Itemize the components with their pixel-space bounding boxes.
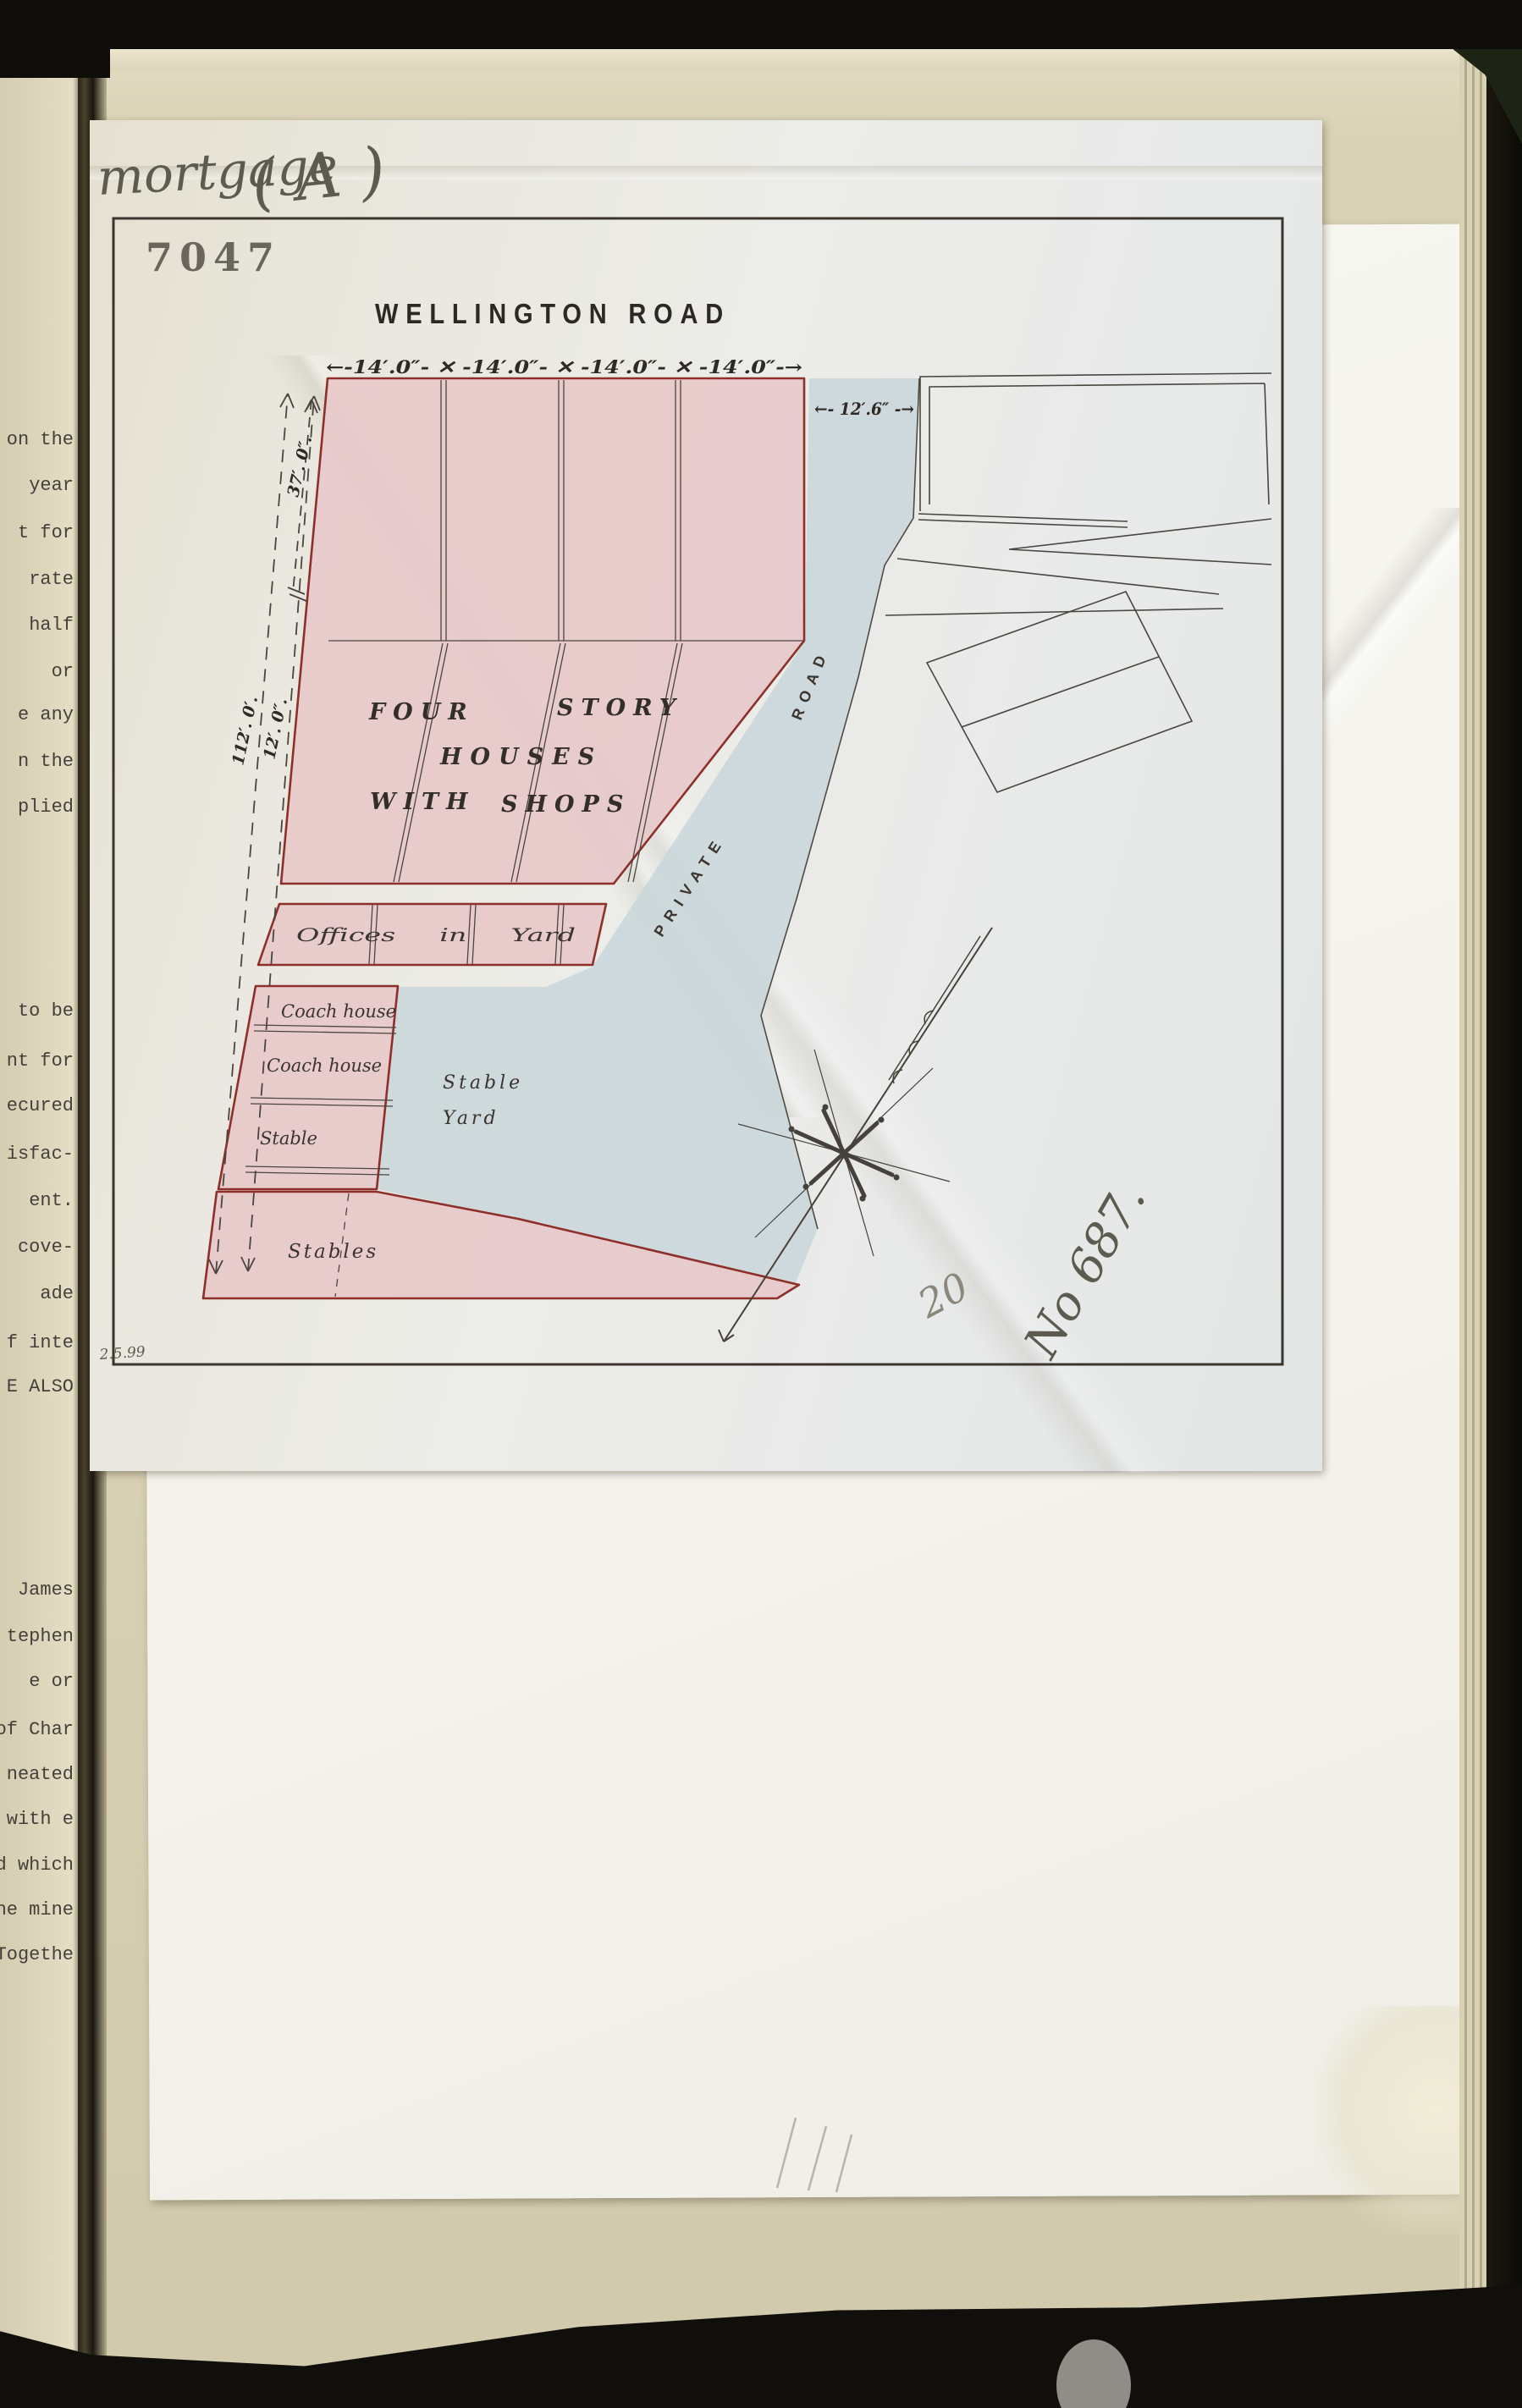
- label-stable: Stable: [260, 1128, 317, 1149]
- label-offices-in-yard: Offices in Yard: [296, 925, 576, 945]
- label-coach-house-2: Coach house: [267, 1055, 382, 1076]
- label-houses: HOUSES: [439, 744, 603, 770]
- building-outline-wedge: [1009, 519, 1271, 565]
- ink-number: No 687.: [1013, 1174, 1157, 1368]
- building-outline-slanted: [927, 592, 1192, 792]
- book-photo: on the year t for rate half or e any n t…: [0, 0, 1522, 2408]
- handwritten-class-mark: ( A ): [248, 134, 389, 220]
- label-with: WITH: [370, 789, 476, 815]
- label-four: FOUR: [368, 699, 475, 725]
- frontage-dimension-row: ←-14′.0″- ✕ -14′.0″- ✕ -14′.0″- ✕ -14′.0…: [326, 356, 802, 377]
- plan-drawing: 7047 WELLINGTON ROAD ←-14′.0″- ✕ -14′.0″…: [0, 0, 1522, 2408]
- label-stables: Stables: [288, 1241, 378, 1263]
- pencil-strokes: [777, 2118, 852, 2192]
- label-shops: SHOPS: [501, 791, 631, 818]
- outlined-buildings: [885, 373, 1271, 792]
- street-title: WELLINGTON ROAD: [375, 298, 731, 329]
- side-dimension-outer: 112′. 0′.: [229, 695, 262, 768]
- side-dimension-middle: 12′. 0″.: [260, 697, 291, 761]
- label-stable-yard-2: Yard: [443, 1108, 499, 1129]
- label-stable-yard-1: Stable: [443, 1072, 523, 1094]
- label-coach-house-1: Coach house: [281, 1001, 396, 1022]
- road-gap-dimension: ←- 12′.6″ -→: [814, 399, 914, 419]
- survey-date-note: 2.5.99: [98, 1343, 146, 1364]
- grey-blob: [1056, 2339, 1131, 2408]
- plot-boundary-lines: [885, 559, 1223, 615]
- building-outline-large: [918, 373, 1271, 527]
- label-story: STORY: [557, 695, 683, 721]
- pencil-number: 20: [910, 1264, 976, 1328]
- side-dimension-inner: 37′. 0″.: [284, 434, 316, 499]
- plan-stamp-number: 7047: [146, 234, 281, 280]
